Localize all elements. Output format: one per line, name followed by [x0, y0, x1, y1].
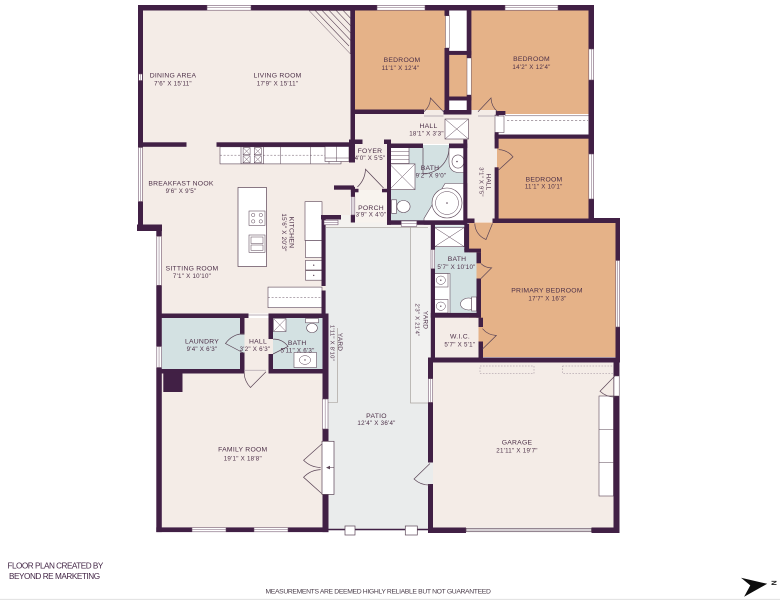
- svg-text:14'2" X 12'4": 14'2" X 12'4": [512, 64, 550, 71]
- svg-text:FOYER: FOYER: [358, 148, 383, 155]
- svg-text:PRIMARY BEDROOM: PRIMARY BEDROOM: [511, 288, 583, 295]
- svg-text:BEYOND RE MARKETING: BEYOND RE MARKETING: [9, 572, 100, 581]
- svg-text:HALL: HALL: [485, 174, 492, 191]
- svg-text:DINING AREA: DINING AREA: [150, 73, 197, 80]
- svg-text:5'11" X 6'3": 5'11" X 6'3": [280, 347, 314, 354]
- svg-text:BEDROOM: BEDROOM: [513, 56, 550, 63]
- svg-text:BEDROOM: BEDROOM: [526, 177, 563, 184]
- svg-text:LIVING ROOM: LIVING ROOM: [253, 73, 301, 80]
- svg-text:BATH: BATH: [448, 256, 467, 263]
- svg-text:YARD: YARD: [336, 333, 343, 351]
- svg-text:3'9" X 4'0": 3'9" X 4'0": [356, 212, 387, 219]
- svg-text:12'4" X 36'4": 12'4" X 36'4": [357, 420, 395, 427]
- svg-text:21'11" X 19'7": 21'11" X 19'7": [496, 448, 537, 455]
- svg-text:PATIO: PATIO: [366, 413, 387, 420]
- svg-text:KITCHEN: KITCHEN: [288, 217, 295, 249]
- svg-text:BATH: BATH: [421, 165, 440, 172]
- svg-text:BREAKFAST NOOK: BREAKFAST NOOK: [148, 180, 214, 187]
- svg-text:BEDROOM: BEDROOM: [384, 57, 421, 64]
- svg-text:19'1" X 18'8": 19'1" X 18'8": [224, 455, 262, 462]
- svg-text:7'6" X 15'11": 7'6" X 15'11": [154, 81, 192, 88]
- svg-text:N: N: [770, 580, 777, 585]
- svg-text:7'1" X 10'10": 7'1" X 10'10": [173, 273, 211, 280]
- svg-text:YARD: YARD: [421, 311, 428, 329]
- svg-text:SITTING ROOM: SITTING ROOM: [166, 265, 219, 272]
- svg-text:18'1" X 3'3": 18'1" X 3'3": [409, 131, 444, 138]
- svg-text:9'2" X 9'0": 9'2" X 9'0": [416, 172, 447, 179]
- svg-text:2'3" X 21'4": 2'3" X 21'4": [413, 303, 419, 336]
- svg-text:1'11" X 8'10": 1'11" X 8'10": [328, 325, 334, 361]
- svg-text:17'9" X 15'11": 17'9" X 15'11": [257, 81, 298, 88]
- svg-text:3'1" X 9'5": 3'1" X 9'5": [478, 167, 484, 197]
- svg-text:GARAGE: GARAGE: [502, 440, 533, 447]
- svg-text:15'6" X 20'3": 15'6" X 20'3": [280, 213, 287, 251]
- svg-text:11'1" X 12'4": 11'1" X 12'4": [382, 65, 420, 72]
- svg-text:FLOOR PLAN CREATED BY: FLOOR PLAN CREATED BY: [8, 562, 104, 571]
- svg-text:LAUNDRY: LAUNDRY: [185, 338, 219, 345]
- svg-text:W.I.C.: W.I.C.: [450, 333, 470, 340]
- svg-text:HALL: HALL: [419, 123, 437, 130]
- svg-text:5'7" X 10'10": 5'7" X 10'10": [437, 264, 475, 271]
- svg-text:3'2" X 6'3": 3'2" X 6'3": [240, 346, 271, 353]
- svg-text:MEASUREMENTS ARE DEEMED HIGHLY: MEASUREMENTS ARE DEEMED HIGHLY RELIABLE …: [265, 588, 491, 595]
- svg-text:HALL: HALL: [249, 338, 267, 345]
- svg-text:FAMILY ROOM: FAMILY ROOM: [218, 447, 267, 454]
- svg-text:9'6" X 9'5": 9'6" X 9'5": [166, 188, 197, 195]
- svg-text:17'7" X 16'3": 17'7" X 16'3": [528, 296, 566, 303]
- svg-text:11'1" X 10'1": 11'1" X 10'1": [525, 184, 563, 191]
- svg-text:BATH: BATH: [288, 340, 307, 347]
- svg-text:9'4" X 6'3": 9'4" X 6'3": [187, 346, 218, 353]
- svg-text:5'7" X 5'1": 5'7" X 5'1": [444, 342, 475, 349]
- svg-text:4'0" X 5'5": 4'0" X 5'5": [355, 155, 386, 162]
